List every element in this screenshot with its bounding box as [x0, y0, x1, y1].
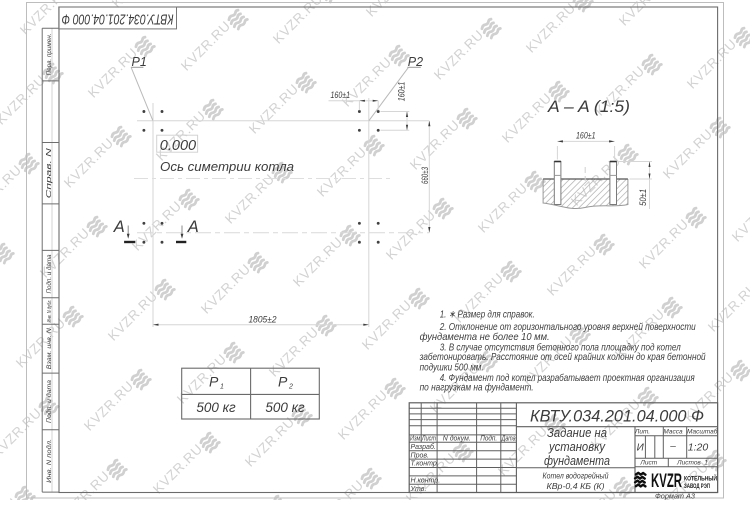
- svg-text:A – A (1:5): A – A (1:5): [547, 98, 630, 116]
- svg-text:Масштаб: Масштаб: [687, 428, 718, 436]
- svg-text:Подп.: Подп.: [480, 435, 497, 443]
- svg-text:P: P: [278, 374, 288, 390]
- svg-text:Листов: Листов: [676, 460, 701, 467]
- svg-text:50±1: 50±1: [638, 189, 649, 206]
- svg-text:KVZR.RU: KVZR.RU: [13, 315, 68, 370]
- svg-text:KVZR.RU: KVZR.RU: [109, 0, 164, 11]
- svg-text:Пров.: Пров.: [411, 452, 430, 459]
- svg-text:KVZR.RU: KVZR.RU: [729, 189, 750, 244]
- svg-text:Масса: Масса: [663, 429, 683, 436]
- svg-text:–: –: [669, 441, 676, 452]
- svg-text:0.000: 0.000: [160, 138, 196, 154]
- svg-text:КОТЕЛЬНЫЙ: КОТЕЛЬНЫЙ: [684, 474, 717, 482]
- svg-text:KVZR.RU: KVZR.RU: [684, 36, 739, 91]
- svg-text:Утв.: Утв.: [410, 486, 427, 493]
- svg-text:KVZR.RU: KVZR.RU: [383, 207, 438, 262]
- svg-text:KVZR.RU: KVZR.RU: [311, 477, 366, 500]
- svg-text:N докум.: N докум.: [443, 435, 471, 443]
- svg-text:по нагрузкам на фундамент.: по нагрузкам на фундамент.: [420, 382, 534, 394]
- svg-text:Задание на: Задание на: [547, 426, 607, 440]
- svg-text:KVZR: KVZR: [651, 470, 682, 492]
- svg-text:KVZR.RU: KVZR.RU: [57, 468, 112, 500]
- svg-text:Разраб.: Разраб.: [411, 443, 436, 451]
- svg-text:KVZR.RU: KVZR.RU: [0, 162, 25, 217]
- svg-text:KVZR.RU: KVZR.RU: [475, 180, 530, 235]
- svg-text:KVZR.RU: KVZR.RU: [709, 0, 750, 2]
- svg-text:Т.контр.: Т.контр.: [411, 461, 439, 468]
- svg-text:Изм.Лист: Изм.Лист: [410, 436, 436, 443]
- svg-text:забетонировать. Расстояние от: забетонировать. Расстояние от осей крайн…: [419, 351, 706, 363]
- svg-text:500 кг: 500 кг: [196, 400, 236, 415]
- svg-text:1: 1: [220, 384, 224, 391]
- svg-text:KVZR.RU: KVZR.RU: [129, 198, 184, 253]
- svg-text:KVZR.RU: KVZR.RU: [431, 27, 486, 82]
- svg-text:KVZR.RU: KVZR.RU: [407, 117, 462, 172]
- svg-text:Н.контр.: Н.контр.: [411, 478, 441, 485]
- svg-text:KVZR.RU: KVZR.RU: [105, 288, 160, 343]
- svg-text:KVZR.RU: KVZR.RU: [242, 414, 297, 469]
- svg-text:КВТУ.034.201.04.000 Ф: КВТУ.034.201.04.000 Ф: [530, 407, 704, 426]
- svg-text:500 кг: 500 кг: [265, 400, 305, 415]
- svg-text:Котел водогрейный: Котел водогрейный: [543, 471, 609, 481]
- svg-text:KVZR.RU: KVZR.RU: [705, 279, 750, 334]
- svg-text:KVZR.RU: KVZR.RU: [339, 54, 394, 109]
- svg-text:KVZR.RU: KVZR.RU: [0, 72, 49, 127]
- svg-text:KVZR.RU: KVZR.RU: [150, 441, 205, 496]
- svg-text:KVZR.RU: KVZR.RU: [616, 0, 671, 29]
- svg-text:КВр-0,4 КБ (К): КВр-0,4 КБ (К): [547, 481, 605, 491]
- svg-text:установку: установку: [548, 440, 606, 454]
- svg-text:A: A: [113, 218, 125, 236]
- svg-text:фундамента: фундамента: [544, 454, 610, 468]
- svg-text:KVZR.RU: KVZR.RU: [178, 18, 233, 73]
- svg-text:1. ∗ Размер для справок.: 1. ∗ Размер для справок.: [440, 310, 535, 321]
- svg-text:Подп. и дата: Подп. и дата: [45, 254, 53, 293]
- svg-text:Инв. N подл.: Инв. N подл.: [45, 439, 53, 483]
- svg-text:Лит.: Лит.: [634, 429, 650, 436]
- svg-text:И: И: [637, 443, 645, 454]
- svg-text:KVZR.RU: KVZR.RU: [0, 405, 45, 460]
- svg-text:подушки 500 мм.: подушки 500 мм.: [420, 363, 484, 374]
- svg-text:KVZR.RU: KVZR.RU: [153, 108, 208, 163]
- svg-text:1: 1: [704, 460, 708, 467]
- svg-text:KVZR.RU: KVZR.RU: [85, 45, 140, 100]
- svg-text:KVZR.RU: KVZR.RU: [660, 126, 715, 181]
- svg-text:160±1: 160±1: [331, 90, 351, 101]
- svg-text:KVZR.RU: KVZR.RU: [335, 387, 390, 442]
- svg-text:KVZR.RU: KVZR.RU: [266, 324, 321, 379]
- svg-text:P: P: [209, 374, 219, 390]
- svg-text:KVZR.RU: KVZR.RU: [61, 135, 116, 190]
- svg-text:KVZR.RU: KVZR.RU: [544, 243, 599, 298]
- svg-text:Ось симетрии котла: Ось симетрии котла: [160, 159, 294, 174]
- svg-text:Подп. и дата: Подп. и дата: [45, 380, 53, 423]
- svg-text:Инв. N дубл.: Инв. N дубл.: [47, 300, 53, 323]
- svg-text:1:20: 1:20: [688, 442, 709, 454]
- svg-text:KVZR.RU: KVZR.RU: [290, 234, 345, 289]
- svg-text:КВТУ.034.201.04.000 Ф: КВТУ.034.201.04.000 Ф: [62, 11, 174, 28]
- svg-text:KVZR.RU: KVZR.RU: [81, 378, 136, 433]
- svg-text:2: 2: [288, 384, 293, 391]
- svg-text:фундамента не более 10 мм.: фундамента не более 10 мм.: [420, 331, 550, 343]
- svg-text:Дата: Дата: [501, 436, 516, 443]
- svg-text:KVZR.RU: KVZR.RU: [222, 171, 277, 226]
- svg-text:KVZR.RU: KVZR.RU: [246, 81, 301, 136]
- svg-text:KVZR.RU: KVZR.RU: [636, 216, 691, 271]
- svg-text:Взам. инв. N: Взам. инв. N: [46, 328, 53, 369]
- svg-text:KVZR.RU: KVZR.RU: [174, 351, 229, 406]
- svg-text:KVZR.RU: KVZR.RU: [314, 144, 369, 199]
- svg-text:A: A: [187, 218, 199, 236]
- svg-text:Лист: Лист: [639, 460, 657, 467]
- svg-text:660±3: 660±3: [420, 167, 431, 184]
- svg-text:160±1: 160±1: [396, 82, 407, 102]
- svg-text:ЗАВОД РЭП: ЗАВОД РЭП: [684, 484, 710, 490]
- svg-text:1805±2: 1805±2: [249, 314, 278, 325]
- svg-text:Перв. примен.: Перв. примен.: [46, 33, 53, 75]
- svg-text:KVZR.RU: KVZR.RU: [523, 0, 578, 55]
- svg-text:KVZR.RU: KVZR.RU: [198, 261, 253, 316]
- svg-text:KVZR.RU: KVZR.RU: [499, 90, 554, 145]
- svg-text:160±1: 160±1: [576, 131, 596, 142]
- svg-text:Формат А3: Формат А3: [655, 491, 696, 500]
- svg-text:Справ. N: Справ. N: [46, 147, 53, 199]
